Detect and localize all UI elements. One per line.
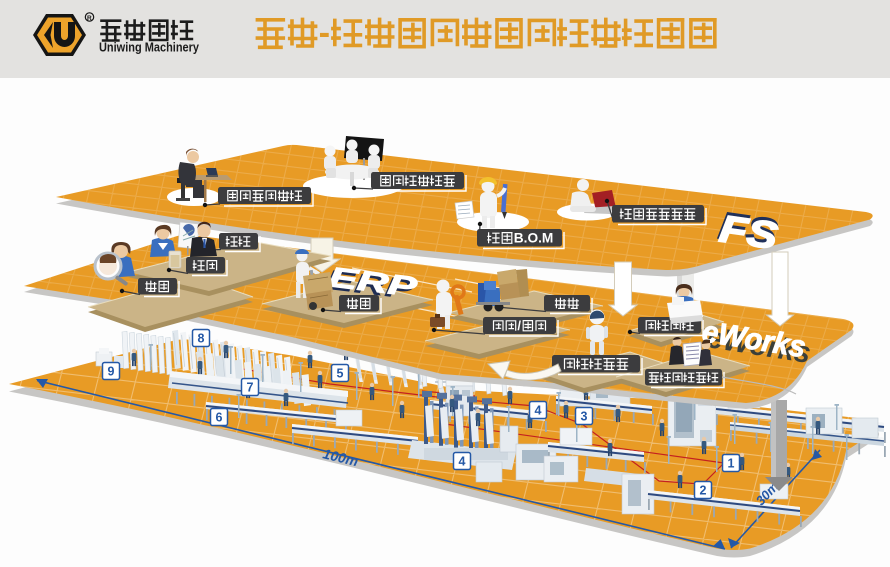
svg-text:6: 6 xyxy=(216,410,223,424)
svg-text:4: 4 xyxy=(459,454,466,468)
svg-text:B.O.M: B.O.M xyxy=(514,230,554,245)
svg-text:5: 5 xyxy=(337,366,344,380)
svg-text:-: - xyxy=(319,14,330,52)
svg-text:7: 7 xyxy=(247,380,254,394)
svg-text:4: 4 xyxy=(535,403,542,417)
svg-text:Uniwing Machinery: Uniwing Machinery xyxy=(99,41,199,55)
svg-text:9: 9 xyxy=(108,364,115,378)
svg-text:3: 3 xyxy=(581,409,588,423)
svg-text:2: 2 xyxy=(700,483,707,497)
svg-text:FS: FS xyxy=(717,208,780,258)
svg-text:1: 1 xyxy=(728,456,735,470)
svg-text:R: R xyxy=(87,15,92,22)
svg-text:/: / xyxy=(517,318,521,333)
svg-text:8: 8 xyxy=(198,331,205,345)
